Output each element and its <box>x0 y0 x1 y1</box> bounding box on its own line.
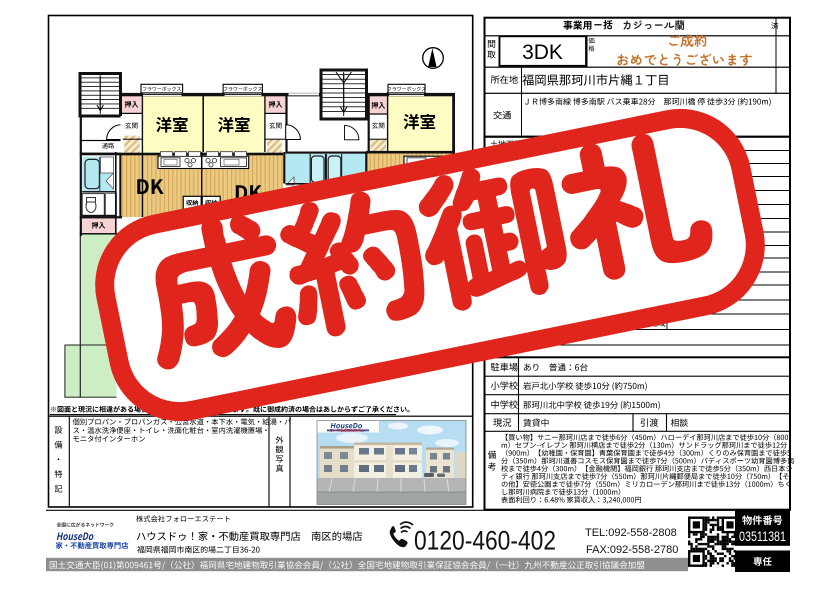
svg-text:FAX:092-558-2780: FAX:092-558-2780 <box>586 544 678 556</box>
svg-text:3DK: 3DK <box>522 41 563 64</box>
svg-text:0120-460-402: 0120-460-402 <box>414 526 556 556</box>
svg-text:03511381: 03511381 <box>739 529 786 544</box>
svg-text:TEL:092-558-2808: TEL:092-558-2808 <box>585 527 677 539</box>
